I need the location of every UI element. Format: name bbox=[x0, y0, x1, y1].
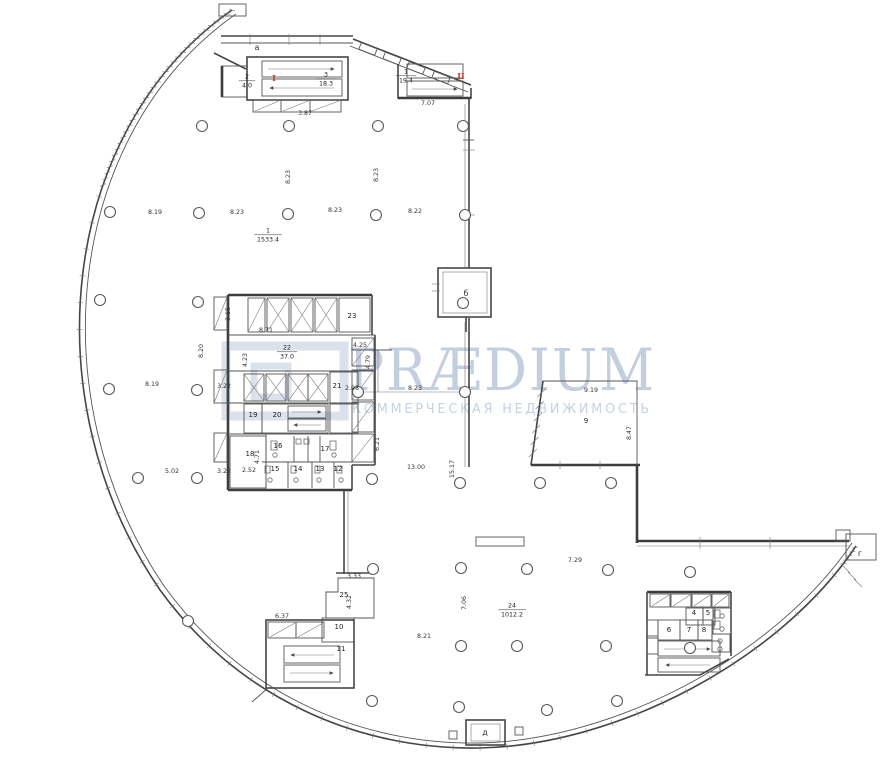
southwest-stairs bbox=[252, 490, 376, 702]
dimension-label: 13.00 bbox=[407, 464, 425, 471]
wall-tick bbox=[846, 555, 852, 556]
dimension-label: 4.25 bbox=[353, 342, 367, 349]
wall-tick bbox=[189, 43, 195, 44]
wall-tick bbox=[147, 92, 153, 93]
floor-plan-canvas: PRÆDIUM КОММЕРЧЕСКАЯ НЕДВИЖИМОСТЬ bbox=[0, 0, 881, 768]
room-area-num: 24 bbox=[508, 603, 516, 610]
room-number: 25 bbox=[340, 591, 349, 599]
wall-tick bbox=[849, 551, 855, 552]
dimension-label: 8.19 bbox=[145, 381, 159, 388]
dimension-label: 8.47 bbox=[626, 426, 633, 440]
dimension-label: 3.87 bbox=[298, 110, 312, 117]
dimension-label: 4.79 bbox=[365, 355, 372, 369]
dimension-label: 8.23 bbox=[285, 170, 292, 184]
room-number: 9 bbox=[584, 417, 588, 425]
room-area-fraction: 318.3 bbox=[316, 72, 336, 88]
room-number: 6 bbox=[667, 626, 672, 634]
room-area-value: 4.0 bbox=[242, 83, 252, 90]
wall-tick bbox=[507, 744, 508, 750]
wall-tick bbox=[426, 743, 427, 749]
dimension-label: 7.07 bbox=[421, 100, 435, 107]
room-area-value: 1012.2 bbox=[501, 612, 523, 619]
dimension-label: 3.22 bbox=[217, 468, 231, 475]
dimension-label: 8.23 bbox=[408, 385, 422, 392]
wall-tick bbox=[151, 87, 157, 88]
entrance-marker: II bbox=[457, 71, 465, 81]
wall-tick bbox=[80, 275, 86, 276]
room-area-value: 19.4 bbox=[399, 78, 413, 85]
watermark-tagline: КОММЕРЧЕСКАЯ НЕДВИЖИМОСТЬ bbox=[352, 401, 652, 417]
dimension-label: 5.02 bbox=[165, 468, 179, 475]
south-area-walls bbox=[449, 381, 876, 745]
wall-tick bbox=[203, 30, 209, 31]
dimension-label: 8.23 bbox=[328, 207, 342, 214]
dimension-label: 3.33 bbox=[347, 573, 361, 580]
room-area-value: 1533.4 bbox=[257, 237, 279, 244]
floor-plan-svg: PRÆDIUM КОММЕРЧЕСКАЯ НЕДВИЖИМОСТЬ bbox=[0, 0, 881, 768]
dimension-label: 8.20 bbox=[198, 344, 205, 358]
dimension-label: 6.37 bbox=[275, 613, 289, 620]
column-grid bbox=[95, 121, 696, 716]
dimension-label: 8.23 bbox=[230, 209, 244, 216]
wall-tick bbox=[154, 82, 160, 83]
wall-tick bbox=[198, 34, 204, 35]
room-number: 15 bbox=[271, 465, 280, 473]
room-number: 4 bbox=[692, 609, 697, 617]
dimension-label: 4.71 bbox=[254, 450, 261, 464]
dimension-label: 3.15 bbox=[225, 307, 232, 321]
room-number: 7 bbox=[687, 626, 691, 634]
room-number: 10 bbox=[335, 623, 344, 631]
room-2-vestibule bbox=[222, 66, 247, 97]
dimension-label: 2.98 bbox=[345, 385, 359, 392]
room-area-num: 1 bbox=[404, 69, 408, 76]
room-number: 8 bbox=[702, 626, 706, 634]
room-number: 11 bbox=[337, 645, 346, 653]
dimension-label: 8.22 bbox=[408, 208, 422, 215]
dimension-label: 8.71 bbox=[259, 327, 273, 334]
room-number: 5 bbox=[706, 609, 710, 617]
wall-tick bbox=[80, 383, 86, 384]
room-area-num: 3 bbox=[324, 72, 328, 79]
entrance-marker: I bbox=[272, 73, 276, 83]
dimension-label: 15.17 bbox=[449, 460, 456, 478]
axis-letter: б bbox=[464, 289, 469, 298]
axis-letter: г bbox=[858, 549, 862, 558]
room-area-value: 37.0 bbox=[280, 354, 294, 361]
dimension-label: 3.22 bbox=[217, 383, 231, 390]
room-area-num: 2 bbox=[245, 74, 249, 81]
dimension-label: 6.21 bbox=[374, 437, 381, 451]
room-area-num: 22 bbox=[283, 345, 291, 352]
dimension-label: 8.21 bbox=[417, 633, 431, 640]
dimension-label: 7.06 bbox=[461, 596, 468, 610]
dimension-label: 9.19 bbox=[584, 387, 598, 394]
dimension-label: 2.52 bbox=[242, 467, 256, 474]
annex-g bbox=[836, 530, 876, 587]
wall-tick bbox=[193, 38, 199, 39]
room-number: 17 bbox=[321, 445, 330, 453]
room-number: 20 bbox=[273, 411, 282, 419]
room-area-fraction: 241012.2 bbox=[498, 603, 526, 619]
room-number: 21 bbox=[333, 382, 342, 390]
room-area-num: 1 bbox=[266, 228, 270, 235]
watermark-brand: PRÆDIUM bbox=[348, 336, 656, 404]
room-number: 18 bbox=[246, 450, 255, 458]
room-area-value: 18.3 bbox=[319, 81, 333, 88]
se-fixtures bbox=[714, 610, 724, 651]
wall-tick bbox=[840, 564, 846, 565]
dimension-label: 4.23 bbox=[242, 353, 249, 367]
room-number: 19 bbox=[249, 411, 258, 419]
axis-letter: д bbox=[482, 728, 488, 737]
room-number: 12 bbox=[334, 465, 343, 473]
room-area-fraction: 11533.4 bbox=[254, 228, 282, 244]
room-number: 23 bbox=[348, 312, 357, 320]
axis-letter: а bbox=[255, 43, 260, 52]
room-number: 13 bbox=[316, 465, 325, 473]
dimension-label: 8.23 bbox=[373, 168, 380, 182]
dimension-label: 7.29 bbox=[568, 557, 582, 564]
room-number: 14 bbox=[294, 465, 303, 473]
dimension-label: 8.19 bbox=[148, 209, 162, 216]
room-number: 16 bbox=[274, 442, 283, 450]
